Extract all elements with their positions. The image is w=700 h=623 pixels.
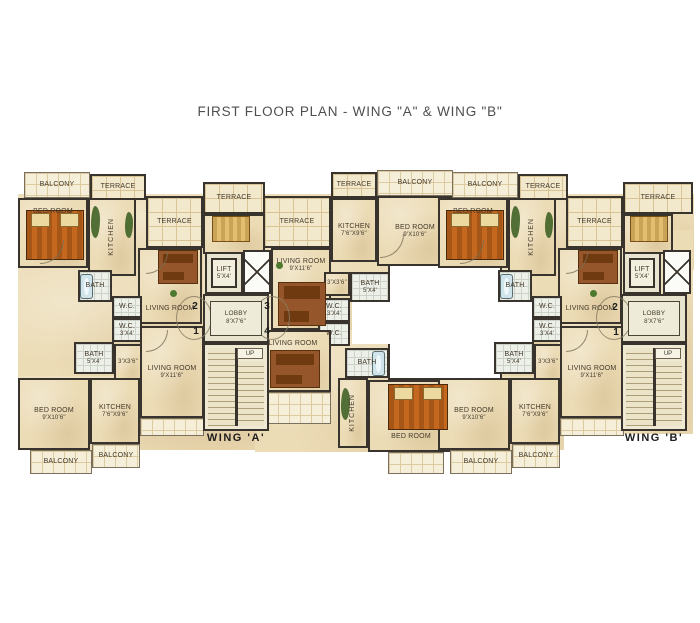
passage-a1-label: 3'X3'6" — [118, 359, 138, 367]
shaft-b — [663, 250, 691, 294]
bath-a1-label: BATH5'X4' — [85, 350, 104, 367]
stair-flight — [626, 348, 653, 426]
unit-number: 2 — [188, 300, 202, 314]
livingroom-b1-label: LIVING ROOM9'X11'6" — [568, 364, 617, 381]
kitchen-b2-label: KITCHEN — [527, 218, 536, 256]
balcony-a1-label: BALCONY — [44, 457, 79, 466]
wing-a-label: WING 'A' — [186, 432, 286, 444]
shaft-a — [243, 250, 271, 294]
terrace-a2-top-label: TERRACE — [101, 182, 136, 191]
terrace-a3-top-label: TERRACE — [337, 180, 372, 189]
kitchen-a1-label: KITCHEN7'6"X9'6" — [99, 403, 131, 420]
courtyard — [388, 264, 502, 380]
wc-a1-label: W.C.3'X4' — [119, 322, 135, 339]
sofa-furniture — [270, 350, 320, 388]
terrace-b-core-label: TERRACE — [641, 193, 676, 202]
lobby-b: LOBBY8'X7'6" — [621, 294, 687, 343]
bedroom-a1-label: BED ROOM9'X10'6" — [34, 406, 74, 423]
unit-number: 1 — [189, 325, 203, 339]
terrace-a2-top: TERRACE — [90, 174, 146, 200]
lift-a: LIFT5'X4' — [205, 252, 243, 294]
bath-b1-label: BATH5'X4' — [505, 350, 524, 367]
wc-b1: W.C.3'X4' — [532, 318, 562, 342]
dot-furniture — [590, 290, 597, 297]
terrace-a3-big: TERRACE — [263, 196, 331, 248]
unit-number: 1 — [609, 326, 623, 340]
wc-b2-label: W.C. — [539, 302, 555, 311]
balcony-b1k: BALCONY — [512, 444, 560, 468]
livingroom-a4-label: LIVING ROOM — [269, 339, 318, 348]
balcony-a4-top: BALCONY — [377, 170, 453, 196]
balcony-b1k-label: BALCONY — [519, 451, 554, 460]
passage-a3: 3'X3'6" — [324, 272, 350, 296]
courtyard-notch-left — [352, 302, 390, 344]
bedroom-a3-label: BED ROOM9'X10'6" — [395, 223, 435, 240]
bedsm-furniture — [630, 216, 668, 242]
balcony-a1: BALCONY — [30, 450, 92, 474]
kitchen-a3-label: KITCHEN7'6"X9'6" — [338, 222, 370, 239]
balcony-b2-top-label: BALCONY — [468, 180, 503, 189]
balcony-a2-top: BALCONY — [24, 172, 90, 198]
wc-b1-label: W.C.3'X4' — [539, 322, 555, 339]
livingroom-a3-label: LIVING ROOM9'X11'6" — [277, 257, 326, 274]
balcony-a4-top-label: BALCONY — [398, 178, 433, 187]
dot-furniture — [170, 290, 177, 297]
bedroom-a4-label: BED ROOM — [391, 432, 431, 441]
passage-a1: 3'X3'6" — [114, 344, 142, 382]
kitchen-b1: KITCHEN7'6"X9'6" — [510, 378, 560, 444]
wc-a2-label: W.C. — [119, 302, 135, 311]
wc-b2: W.C. — [532, 296, 562, 318]
kitchen-a4-label: KITCHEN — [348, 394, 357, 432]
kitchen-a3: KITCHEN7'6"X9'6" — [331, 198, 377, 262]
wc-a4-label: W.C. — [326, 329, 342, 338]
bedroom-b2-label: BED ROOM — [453, 207, 493, 216]
balcony-a4 — [388, 452, 444, 474]
bath-a3-label: BATH5'X4' — [361, 279, 380, 296]
balcony-b1: BALCONY — [450, 450, 512, 474]
lift-a-label: LIFT5'X4' — [216, 265, 231, 282]
terrace-a2-big-label: TERRACE — [157, 217, 192, 226]
wc-a1: W.C.3'X4' — [112, 318, 142, 342]
balcony-b2-top: BALCONY — [452, 172, 518, 198]
wc-a2: W.C. — [112, 296, 142, 318]
terrace-b2-top: TERRACE — [518, 174, 568, 200]
up-label: UP — [237, 348, 263, 359]
bedsm-furniture — [212, 216, 250, 242]
unit-number: 4 — [260, 325, 274, 339]
bath-a2-label: BATH — [86, 281, 105, 290]
bath-a1: BATH5'X4' — [74, 342, 114, 374]
stair-flight — [655, 361, 682, 426]
wc-a3-label: W.C.3'X4' — [326, 302, 342, 319]
kitchen-b1-label: KITCHEN7'6"X9'6" — [519, 403, 551, 420]
balcony-a2-top-label: BALCONY — [40, 180, 75, 189]
terrace-b-core: TERRACE — [623, 182, 693, 214]
terrace-a-core-label: TERRACE — [217, 193, 252, 202]
terrace-b2-big: TERRACE — [566, 196, 623, 248]
bedroom-a1: BED ROOM9'X10'6" — [18, 378, 90, 450]
stair-flight — [208, 348, 235, 426]
floor-plan-page: FIRST FLOOR PLAN - WING "A" & WING "B" B… — [0, 0, 700, 623]
lobby-b-label: LOBBY8'X7'6" — [643, 310, 666, 326]
lobby-a-label: LOBBY8'X7'6" — [225, 310, 248, 326]
bed-furniture — [388, 384, 448, 430]
balcony-b1-label: BALCONY — [464, 457, 499, 466]
passage-b1-label: 3'X3'6" — [538, 359, 558, 367]
stair-b: UP — [621, 343, 687, 431]
lift-b-label: LIFT5'X4' — [634, 265, 649, 282]
terrace-b2-top-label: TERRACE — [526, 182, 561, 191]
balcony-a1k-label: BALCONY — [99, 451, 134, 460]
wing-b-label: WING 'B' — [604, 432, 700, 444]
bath-b1: BATH5'X4' — [494, 342, 534, 374]
bedroom-b1-label: BED ROOM9'X10'6" — [454, 406, 494, 423]
terrace-a3-top: TERRACE — [331, 172, 377, 198]
floor-plan: BALCONYTERRACEBED ROOMKITCHENTERRACETERR… — [0, 0, 700, 623]
balcony-a1k: BALCONY — [92, 444, 140, 468]
bath-a3: BATH5'X4' — [350, 272, 390, 302]
stair-flight — [237, 361, 264, 426]
terrace-a2-big: TERRACE — [146, 196, 203, 248]
unit-number: 3 — [260, 300, 274, 314]
passage-a3-label: 3'X3'6" — [327, 280, 347, 288]
courtyard-notch-right — [500, 302, 534, 342]
bedroom-b1: BED ROOM9'X10'6" — [438, 378, 510, 450]
terrace-a3-big-label: TERRACE — [280, 217, 315, 226]
up-label: UP — [655, 348, 681, 359]
terrace-b2-big-label: TERRACE — [577, 217, 612, 226]
lift-b: LIFT5'X4' — [623, 252, 661, 294]
bath-b2-label: BATH — [506, 281, 525, 290]
unit-number: 2 — [608, 301, 622, 315]
kitchen-a1: KITCHEN7'6"X9'6" — [90, 378, 140, 444]
bath-a4-label: BATH — [358, 358, 377, 367]
livingroom-a1-label: LIVING ROOM9'X11'6" — [148, 364, 197, 381]
kitchen-a2-label: KITCHEN — [107, 218, 116, 256]
terrace-a-core: TERRACE — [203, 182, 265, 214]
bedroom-a2-label: BED ROOM — [33, 207, 73, 216]
stair-a: UP — [203, 343, 269, 431]
passage-b1: 3'X3'6" — [534, 344, 562, 382]
